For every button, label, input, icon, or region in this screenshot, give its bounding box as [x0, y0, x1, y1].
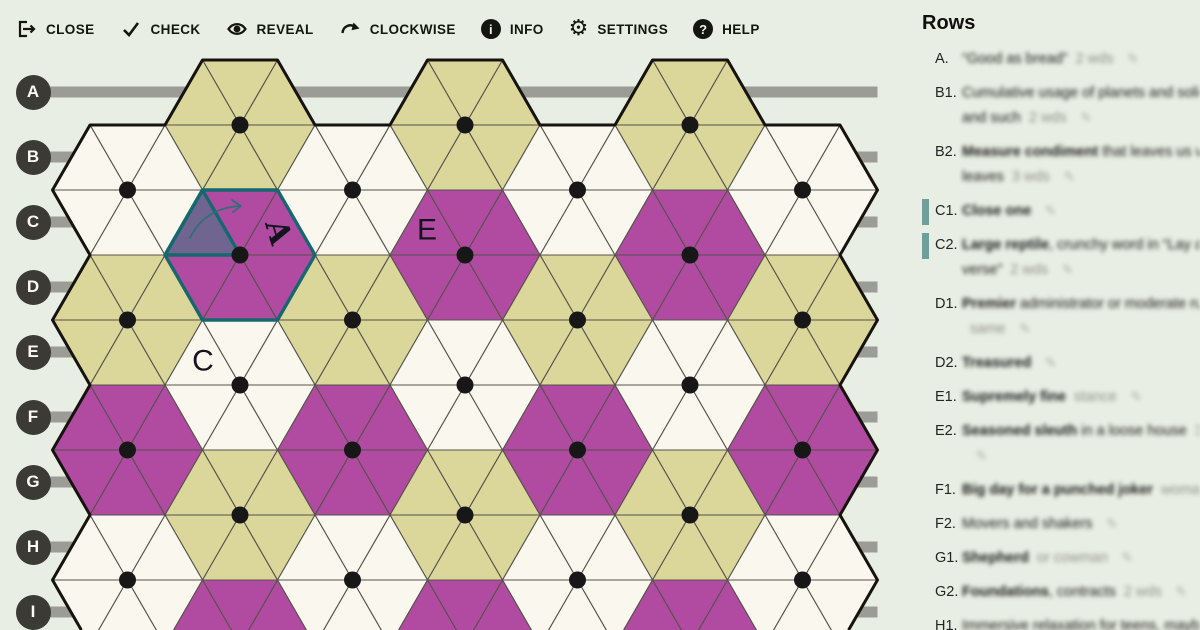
clue-label: A.	[935, 47, 949, 72]
row-label-circle-F[interactable]: F	[16, 400, 51, 435]
clue-item-F1[interactable]: F1.Big day for a punched jokerwoman	[918, 478, 1200, 503]
clockwise-button[interactable]: CLOCKWISE	[339, 18, 456, 40]
clue-text: Immersive relaxation for teens, maybe	[962, 614, 1200, 630]
pencil-icon[interactable]: ✎	[1127, 47, 1138, 72]
info-icon: i	[481, 19, 501, 39]
clue-hint: 2 wds	[1076, 51, 1114, 67]
clue-hint: 3 wds	[1195, 423, 1200, 439]
hexagon-center-dot	[119, 572, 136, 589]
reveal-label: REVEAL	[257, 22, 314, 37]
gear-icon: ⚙	[569, 19, 589, 39]
clue-item-G2[interactable]: G2.Foundations, contracts2 wds✎	[918, 580, 1200, 605]
pencil-icon[interactable]: ✎	[1045, 351, 1056, 376]
hexagon-center-dot	[119, 182, 136, 199]
hexagon-center-dot	[794, 442, 811, 459]
rows-panel-title: Rows	[922, 12, 1200, 35]
pencil-icon[interactable]: ✎	[1062, 258, 1073, 283]
hexagon-center-dot	[794, 572, 811, 589]
clue-hint: stance	[1074, 389, 1117, 405]
clue-hint: 2 wds	[1124, 584, 1162, 600]
hexagon-center-dot	[794, 312, 811, 329]
clue-item-D1[interactable]: D1.Premier administrator or moderate rui…	[918, 292, 1200, 342]
hexagon-center-dot	[232, 507, 249, 524]
pencil-icon[interactable]: ✎	[1131, 385, 1142, 410]
clue-text: Treasured✎	[962, 351, 1200, 376]
clue-item-F2[interactable]: F2.Movers and shakers✎	[918, 512, 1200, 537]
clue-label: G1.	[935, 546, 958, 571]
clue-label: C1.	[935, 199, 958, 224]
clue-text: ✎	[962, 444, 1200, 469]
clue-hint: or cowman	[1037, 550, 1108, 566]
hexagon-center-dot	[232, 377, 249, 394]
clue-text: Foundations, contracts2 wds✎	[962, 580, 1200, 605]
row-label-circle-E[interactable]: E	[16, 335, 51, 370]
clue-hint: same	[970, 321, 1005, 337]
clue-text: Premier administrator or moderate ruins	[962, 292, 1200, 317]
clue-label: D2.	[935, 351, 958, 376]
hexagon-center-dot	[569, 182, 586, 199]
puzzle-board[interactable]: AEC	[0, 0, 900, 630]
clockwise-label: CLOCKWISE	[370, 22, 456, 37]
hexagon-center-dot	[569, 572, 586, 589]
rows-panel: Rows A.“Good as bread”2 wds✎B1.Cumulativ…	[918, 0, 1200, 630]
clue-item-G1[interactable]: G1.Shepherdor cowman✎	[918, 546, 1200, 571]
clue-text: Movers and shakers✎	[962, 512, 1200, 537]
cell-letter: E	[417, 214, 437, 247]
pencil-icon[interactable]: ✎	[1045, 199, 1056, 224]
check-icon	[120, 18, 142, 40]
close-icon	[15, 18, 37, 40]
hexagon-center-dot	[457, 247, 474, 264]
hexagon-center-dot	[682, 377, 699, 394]
hexagon-center-dot	[344, 442, 361, 459]
pencil-icon[interactable]: ✎	[1107, 512, 1118, 537]
clue-text: Supremely finestance✎	[962, 385, 1200, 410]
row-label-circle-C[interactable]: C	[16, 205, 51, 240]
clockwise-arrow-icon	[339, 18, 361, 40]
clue-hint: 3 wds	[1012, 169, 1050, 185]
clue-text: same✎	[962, 317, 1200, 342]
pencil-icon[interactable]: ✎	[1019, 317, 1030, 342]
help-icon: ?	[693, 19, 713, 39]
clue-item-E1[interactable]: E1.Supremely finestance✎	[918, 385, 1200, 410]
clue-label: F1.	[935, 478, 956, 503]
hexagon-center-dot	[344, 182, 361, 199]
hexagon-center-dot	[232, 117, 249, 134]
clue-text: Shepherdor cowman✎	[962, 546, 1200, 571]
clue-text: Measure condiment that leaves us with	[962, 140, 1200, 165]
info-button[interactable]: i INFO	[481, 19, 544, 39]
pencil-icon[interactable]: ✎	[1081, 106, 1092, 131]
check-label: CHECK	[151, 22, 201, 37]
clue-item-B2[interactable]: B2.Measure condiment that leaves us with…	[918, 140, 1200, 190]
hexagon-center-dot	[569, 442, 586, 459]
row-label-circle-H[interactable]: H	[16, 530, 51, 565]
hexagon-center-dot	[119, 312, 136, 329]
clue-label: G2.	[935, 580, 958, 605]
hexagon-center-dot	[457, 377, 474, 394]
row-label-circle-I[interactable]: I	[16, 595, 51, 630]
clue-hint: woman	[1161, 482, 1200, 498]
clue-label: B1.	[935, 81, 957, 106]
hexagon-center-dot	[682, 117, 699, 134]
check-button[interactable]: CHECK	[120, 18, 201, 40]
clue-item-A[interactable]: A.“Good as bread”2 wds✎	[918, 47, 1200, 72]
clue-text: verse”2 wds✎	[962, 258, 1200, 283]
pencil-icon[interactable]: ✎	[1176, 580, 1187, 605]
settings-label: SETTINGS	[597, 22, 668, 37]
clue-text: Cumulative usage of planets and solids	[962, 81, 1200, 106]
reveal-button[interactable]: REVEAL	[226, 18, 314, 40]
hexagon-center-dot	[457, 117, 474, 134]
clue-text: “Good as bread”2 wds✎	[962, 47, 1200, 72]
pencil-icon[interactable]: ✎	[1064, 165, 1075, 190]
close-label: CLOSE	[46, 22, 95, 37]
close-button[interactable]: CLOSE	[15, 18, 95, 40]
clue-label: D1.	[935, 292, 958, 317]
cell-letter: C	[192, 345, 214, 378]
clue-hint: 2 wds	[1029, 110, 1067, 126]
clue-item-E2[interactable]: E2.Seasoned sleuth in a loose house3 wds…	[918, 419, 1200, 469]
clue-label: E2.	[935, 419, 957, 444]
clue-label: B2.	[935, 140, 957, 165]
settings-button[interactable]: ⚙ SETTINGS	[569, 19, 668, 39]
hexagon-center-dot	[344, 572, 361, 589]
clue-text: Close one✎	[962, 199, 1200, 224]
clue-label: C2.	[935, 233, 958, 258]
row-label-circle-G[interactable]: G	[16, 465, 51, 500]
row-label-circle-A[interactable]: A	[16, 75, 51, 110]
help-button[interactable]: ? HELP	[693, 19, 760, 39]
clue-item-D2[interactable]: D2.Treasured✎	[918, 351, 1200, 376]
toolbar: CLOSE CHECK REVEAL CLOCKWISE i INFO ⚙ SE	[0, 0, 910, 58]
hexagon-center-dot	[119, 442, 136, 459]
clue-item-C1[interactable]: C1.Close one✎	[918, 199, 1200, 224]
hexagon-center-dot	[569, 312, 586, 329]
pencil-icon[interactable]: ✎	[1122, 546, 1133, 571]
hexagon-center-dot	[232, 247, 249, 264]
clue-hint: 2 wds	[1010, 262, 1048, 278]
clue-text: Big day for a punched jokerwoman	[962, 478, 1200, 503]
help-label: HELP	[722, 22, 760, 37]
clue-label: E1.	[935, 385, 957, 410]
hexagon-center-dot	[682, 507, 699, 524]
hexagon-center-dot	[682, 247, 699, 264]
eye-icon	[226, 18, 248, 40]
hexagon-center-dot	[344, 312, 361, 329]
info-label: INFO	[510, 22, 544, 37]
hexagon-center-dot	[457, 507, 474, 524]
clue-text: leaves3 wds✎	[962, 165, 1200, 190]
row-label-circle-B[interactable]: B	[16, 140, 51, 175]
clue-item-H1[interactable]: H1.Immersive relaxation for teens, maybe	[918, 614, 1200, 630]
clue-item-B1[interactable]: B1.Cumulative usage of planets and solid…	[918, 81, 1200, 131]
pencil-icon[interactable]: ✎	[976, 444, 987, 469]
clue-text: Large reptile, crunchy word in “Lay a	[962, 233, 1200, 258]
row-label-circle-D[interactable]: D	[16, 270, 51, 305]
clue-list: A.“Good as bread”2 wds✎B1.Cumulative usa…	[918, 47, 1200, 630]
clue-label: F2.	[935, 512, 956, 537]
clue-item-C2[interactable]: C2.Large reptile, crunchy word in “Lay a…	[918, 233, 1200, 283]
hexagon-center-dot	[794, 182, 811, 199]
clue-text: Seasoned sleuth in a loose house3 wds	[962, 419, 1200, 444]
clue-label: H1.	[935, 614, 958, 630]
clue-text: and such2 wds✎	[962, 106, 1200, 131]
